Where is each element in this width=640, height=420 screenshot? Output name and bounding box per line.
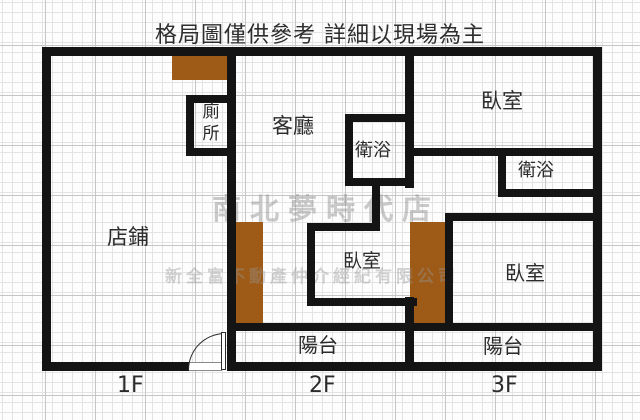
floor-label-3f: 3F (491, 374, 518, 398)
wall-bed2f-left (307, 223, 315, 306)
wall-balcony-top (227, 323, 602, 331)
room-label-shop: 店鋪 (107, 226, 149, 249)
wall-bath2f-left (345, 114, 353, 186)
wall-outer-bottom-left (42, 362, 189, 371)
wall-bed2f-top (307, 223, 380, 231)
plan-title: 格局圖僅供參考 詳細以現場為主 (0, 17, 640, 49)
wall-outer-left (42, 47, 51, 371)
room-label-balcony-3f: 陽台 (483, 335, 523, 357)
wall-toilet-bottom (186, 148, 236, 156)
watermark-store: 南北夢時代店 (212, 186, 440, 228)
wall-bath2f-top (345, 114, 414, 122)
room-label-bed-3f-lower: 臥室 (505, 262, 545, 284)
room-label-bath-2f: 衛浴 (355, 141, 391, 161)
wall-bed2f-bottom (307, 298, 417, 306)
wall-toilet-left (186, 95, 194, 156)
wall-outer-bottom-right (227, 362, 602, 371)
wall-bed3f-top (445, 213, 602, 221)
room-label-bed-2f: 臥室 (343, 251, 381, 272)
wall-divider-2f-3f-lower (405, 297, 414, 371)
door-leaf (221, 332, 226, 370)
room-label-living: 客廳 (272, 115, 314, 138)
wall-bed3f-left (445, 213, 453, 331)
room-label-bath-3f: 衛浴 (518, 161, 554, 181)
room-label-toilet: 廁所 (200, 101, 222, 145)
room-label-balcony-2f: 陽台 (298, 334, 338, 356)
floor-label-1f: 1F (117, 374, 144, 398)
wall-bath3f-bottom (498, 189, 602, 197)
wall-bath2f-bottom (345, 178, 414, 186)
floor-plan: 南北夢時代店 新全富不動產仲介經紀有限公司 格局圖僅供參考 詳細以現場為主 店鋪… (0, 0, 640, 420)
floor-label-2f: 2F (309, 374, 336, 398)
room-label-bed-3f-upper: 臥室 (481, 90, 523, 113)
